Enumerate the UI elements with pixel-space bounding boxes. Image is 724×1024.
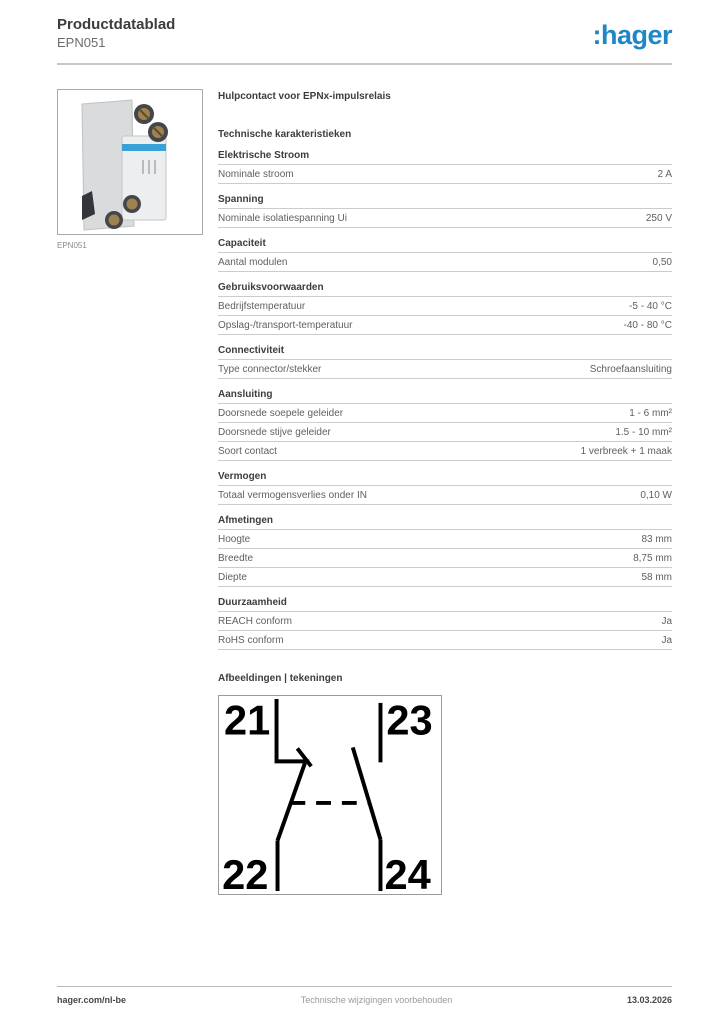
spec-value: -40 - 80 °C (624, 320, 672, 331)
spec-row: Doorsnede soepele geleider1 - 6 mm² (218, 404, 672, 423)
footer-date: 13.03.2026 (627, 995, 672, 1005)
spec-section: VermogenTotaal vermogensverlies onder IN… (218, 471, 672, 505)
spec-label: REACH conform (218, 616, 292, 627)
drawings-section: Afbeeldingen | tekeningen (218, 673, 672, 895)
contact-diagram: 21 23 22 24 (218, 695, 442, 895)
page-title: Productdatablad (57, 16, 175, 35)
section-heading: Duurzaamheid (218, 597, 672, 612)
spec-label: Aantal modulen (218, 257, 288, 268)
section-heading: Aansluiting (218, 389, 672, 404)
spec-row: Type connector/stekkerSchroefaansluiting (218, 360, 672, 379)
spec-value: Schroefaansluiting (590, 364, 672, 375)
spec-label: Diepte (218, 572, 247, 583)
spec-row: Totaal vermogensverlies onder IN0,10 W (218, 486, 672, 505)
spec-section: CapaciteitAantal modulen0,50 (218, 238, 672, 272)
spec-label: Bedrijfstemperatuur (218, 301, 305, 312)
spec-value: 1.5 - 10 mm² (615, 427, 672, 438)
hager-logo: :hager (592, 20, 672, 51)
spec-sections: Elektrische StroomNominale stroom2 ASpan… (218, 150, 672, 650)
terminal-22-label: 22 (222, 851, 268, 894)
section-heading: Capaciteit (218, 238, 672, 253)
spec-row: Aantal modulen0,50 (218, 253, 672, 272)
product-code: EPN051 (57, 35, 175, 52)
spec-row: Hoogte83 mm (218, 530, 672, 549)
main-content: EPN051 Hulpcontact voor EPNx-impulsrelai… (57, 89, 672, 895)
contact-schematic-svg: 21 23 22 24 (219, 696, 441, 894)
spec-value: 250 V (646, 213, 672, 224)
spec-label: RoHS conform (218, 635, 284, 646)
section-heading: Connectiviteit (218, 345, 672, 360)
page-header: Productdatablad EPN051 :hager (0, 0, 724, 52)
spec-label: Breedte (218, 553, 253, 564)
spec-row: Nominale isolatiespanning Ui250 V (218, 209, 672, 228)
spec-section: SpanningNominale isolatiespanning Ui250 … (218, 194, 672, 228)
footer-disclaimer: Technische wijzigingen voorbehouden (301, 995, 453, 1005)
spec-value: -5 - 40 °C (629, 301, 672, 312)
section-heading: Afmetingen (218, 515, 672, 530)
spec-label: Soort contact (218, 446, 277, 457)
section-heading: Elektrische Stroom (218, 150, 672, 165)
spec-value: 1 - 6 mm² (629, 408, 672, 419)
spec-row: Diepte58 mm (218, 568, 672, 587)
spec-row: Doorsnede stijve geleider1.5 - 10 mm² (218, 423, 672, 442)
datasheet-page: Productdatablad EPN051 :hager (0, 0, 724, 1024)
product-image-caption: EPN051 (57, 241, 203, 250)
spec-label: Nominale stroom (218, 169, 294, 180)
spec-label: Nominale isolatiespanning Ui (218, 213, 347, 224)
product-photo-illustration (58, 90, 202, 234)
spec-row: Bedrijfstemperatuur-5 - 40 °C (218, 297, 672, 316)
spec-row: Nominale stroom2 A (218, 165, 672, 184)
drawings-heading: Afbeeldingen | tekeningen (218, 673, 672, 684)
spec-row: Soort contact1 verbreek + 1 maak (218, 442, 672, 461)
section-heading: Spanning (218, 194, 672, 209)
spec-value: 2 A (658, 169, 672, 180)
spec-row: REACH conformJa (218, 612, 672, 631)
spec-value: 83 mm (641, 534, 672, 545)
spec-value: 0,50 (653, 257, 672, 268)
spec-section: AansluitingDoorsnede soepele geleider1 -… (218, 389, 672, 461)
header-divider (57, 63, 672, 65)
section-heading: Vermogen (218, 471, 672, 486)
spec-label: Doorsnede soepele geleider (218, 408, 343, 419)
spec-label: Totaal vermogensverlies onder IN (218, 490, 367, 501)
left-column: EPN051 (57, 89, 203, 895)
section-heading: Gebruiksvoorwaarden (218, 282, 672, 297)
spec-section: AfmetingenHoogte83 mmBreedte8,75 mmDiept… (218, 515, 672, 587)
spec-label: Opslag-/transport-temperatuur (218, 320, 353, 331)
product-image (57, 89, 203, 235)
right-column: Hulpcontact voor EPNx-impulsrelais Techn… (218, 89, 672, 895)
terminal-23-label: 23 (386, 696, 432, 743)
spec-label: Doorsnede stijve geleider (218, 427, 331, 438)
spec-row: Opslag-/transport-temperatuur-40 - 80 °C (218, 316, 672, 335)
spec-label: Type connector/stekker (218, 364, 321, 375)
spec-value: Ja (661, 616, 672, 627)
spec-value: 58 mm (641, 572, 672, 583)
spec-section: DuurzaamheidREACH conformJaRoHS conformJ… (218, 597, 672, 650)
spec-section: Elektrische StroomNominale stroom2 A (218, 150, 672, 184)
terminal-21-label: 21 (224, 696, 270, 743)
spec-value: 0,10 W (640, 490, 672, 501)
title-block: Productdatablad EPN051 (57, 16, 175, 52)
spec-section: GebruiksvoorwaardenBedrijfstemperatuur-5… (218, 282, 672, 335)
tech-characteristics-title: Technische karakteristieken (218, 129, 672, 140)
page-footer: hager.com/nl-be Technische wijzigingen v… (57, 986, 672, 1005)
spec-row: RoHS conformJa (218, 631, 672, 650)
spec-value: 1 verbreek + 1 maak (581, 446, 672, 457)
spec-value: Ja (661, 635, 672, 646)
product-subtitle: Hulpcontact voor EPNx-impulsrelais (218, 91, 672, 102)
spec-value: 8,75 mm (633, 553, 672, 564)
spec-row: Breedte8,75 mm (218, 549, 672, 568)
terminal-24-label: 24 (384, 851, 430, 894)
footer-website: hager.com/nl-be (57, 995, 126, 1005)
spec-label: Hoogte (218, 534, 250, 545)
spec-section: ConnectiviteitType connector/stekkerSchr… (218, 345, 672, 379)
